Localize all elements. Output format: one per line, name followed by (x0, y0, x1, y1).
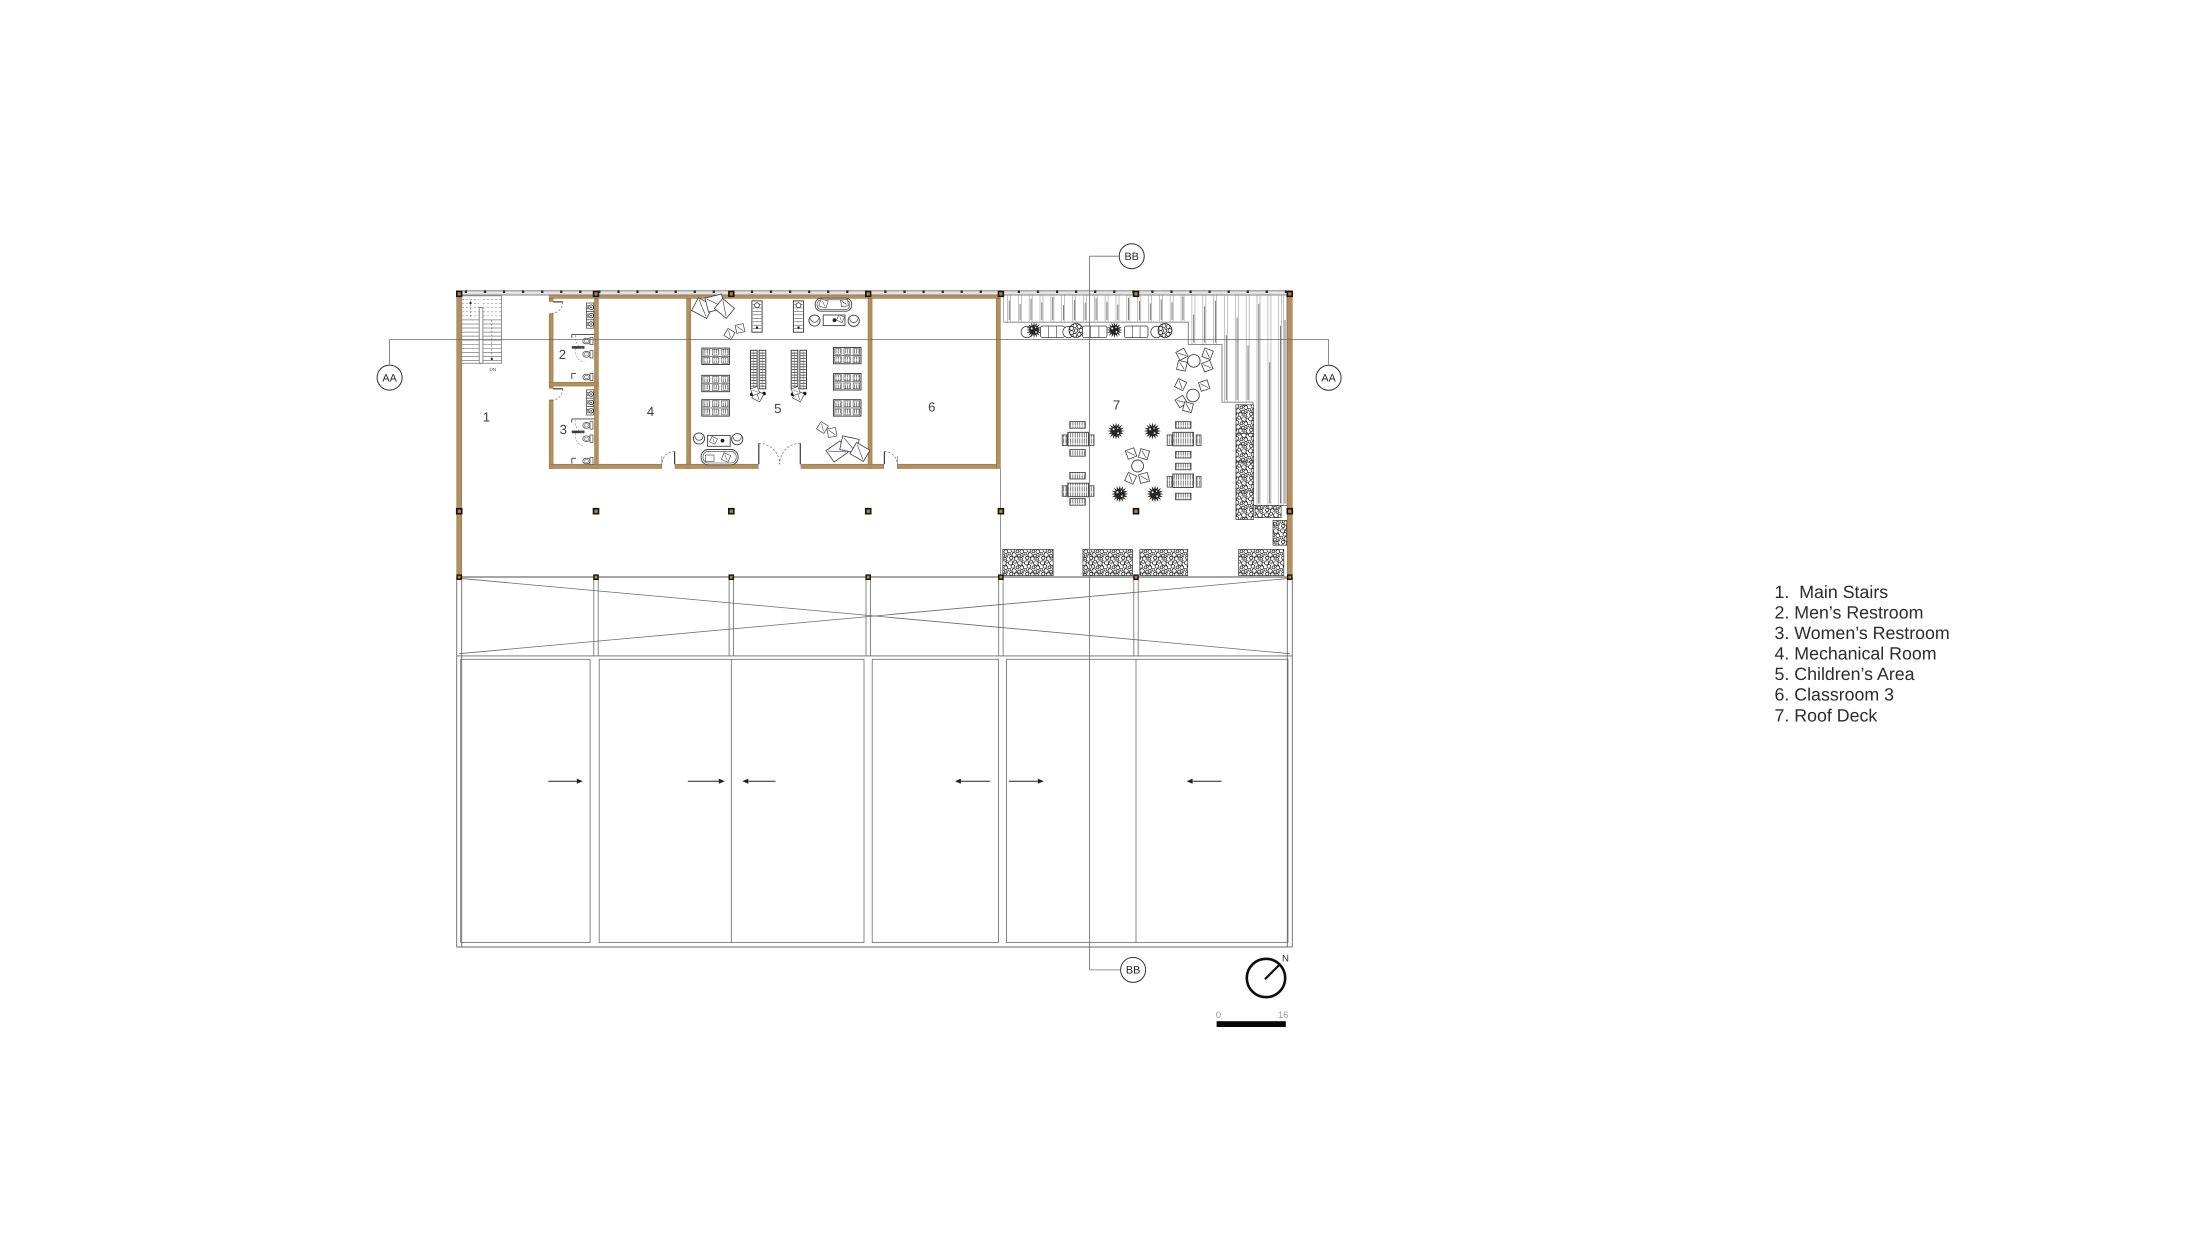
svg-text:1: 1 (483, 409, 490, 424)
svg-text:1. Main Stairs: 1. Main Stairs (1775, 582, 1889, 602)
svg-text:2. Men’s Restroom: 2. Men’s Restroom (1775, 603, 1924, 623)
svg-text:6: 6 (928, 400, 935, 415)
svg-text:7. Roof Deck: 7. Roof Deck (1775, 705, 1878, 725)
svg-text:6. Classroom 3: 6. Classroom 3 (1775, 685, 1895, 705)
svg-text:4: 4 (647, 404, 654, 419)
svg-text:16: 16 (1278, 1009, 1288, 1020)
svg-text:7: 7 (1113, 397, 1120, 412)
svg-text:AA: AA (382, 372, 397, 384)
svg-text:DN: DN (489, 367, 496, 372)
svg-text:5: 5 (774, 401, 781, 416)
svg-text:5. Children’s Area: 5. Children’s Area (1775, 664, 1915, 684)
svg-text:3: 3 (560, 422, 567, 437)
svg-text:3. Women’s Restroom: 3. Women’s Restroom (1775, 623, 1950, 643)
svg-text:BB: BB (1124, 251, 1138, 263)
svg-text:0: 0 (1216, 1009, 1221, 1020)
svg-text:N: N (1282, 954, 1289, 965)
svg-text:BB: BB (1126, 965, 1140, 977)
svg-text:AA: AA (1321, 373, 1336, 385)
svg-text:4. Mechanical Room: 4. Mechanical Room (1775, 644, 1937, 664)
svg-text:2: 2 (559, 347, 566, 362)
